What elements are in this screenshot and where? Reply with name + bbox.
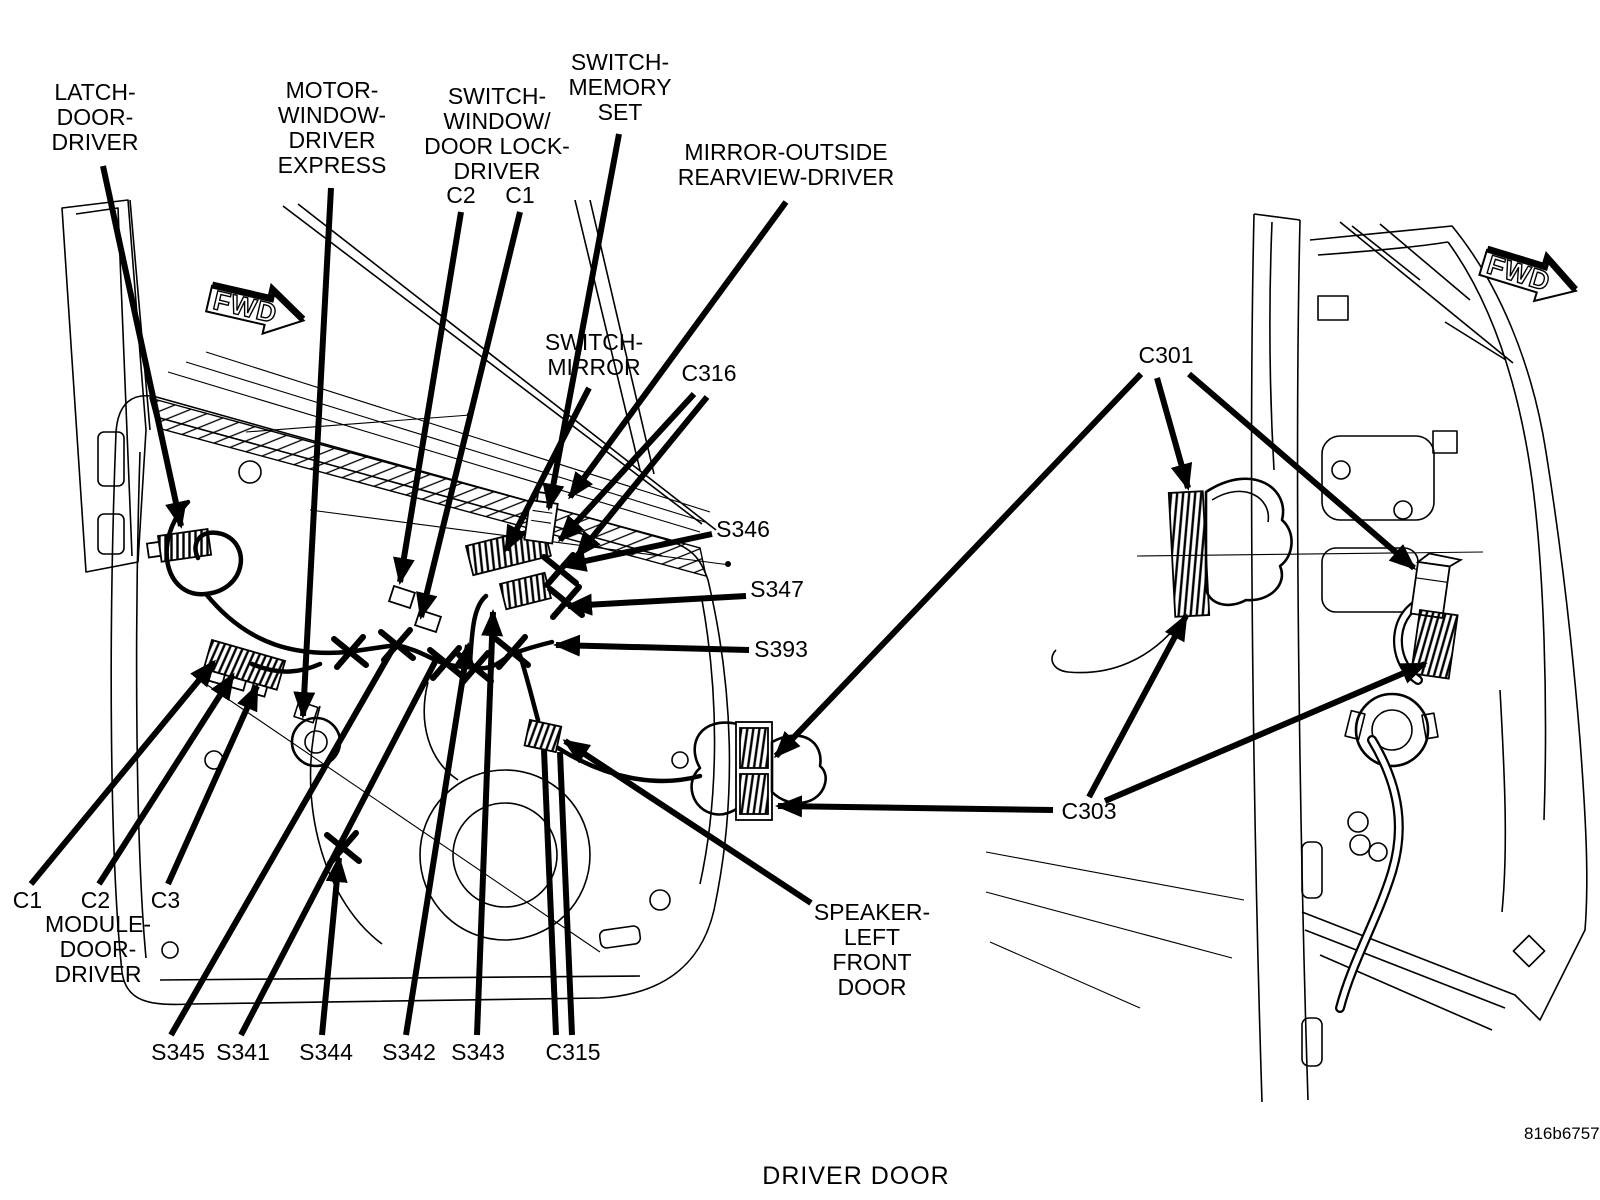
leader-lines: [31, 134, 1425, 1035]
label-s343: S343: [447, 1040, 509, 1065]
label-module-c2: C2: [73, 888, 118, 913]
leader-s345: [171, 650, 392, 1035]
diagram-caption: DRIVER DOOR: [736, 1162, 976, 1191]
leader-c315-1: [544, 750, 556, 1035]
switch-block-2: [500, 573, 551, 609]
label-s393: S393: [748, 637, 814, 662]
label-c303: C303: [1058, 799, 1120, 824]
inline-connector-c315: [525, 720, 562, 752]
label-switch-window-c1: C1: [499, 183, 541, 208]
leader-switch-window-c2: [400, 212, 461, 582]
label-c301: C301: [1134, 343, 1198, 368]
leader-c315-2: [560, 752, 572, 1035]
splice-x: [550, 587, 582, 617]
label-mirror-outside-rearview: MIRROR-OUTSIDE REARVIEW-DRIVER: [666, 140, 906, 190]
leader-c303-left: [778, 806, 1053, 810]
label-switch-memory-set: SWITCH- MEMORY SET: [555, 50, 685, 125]
latch-connector: [146, 529, 211, 563]
label-s345: S345: [147, 1040, 209, 1065]
right-door-art: [986, 214, 1587, 1102]
fwd-arrow-right: FWD: [1477, 240, 1583, 311]
leader-c301-right: [1189, 374, 1414, 568]
fwd-arrow-left: FWD: [204, 276, 309, 342]
leader-speaker: [565, 741, 811, 903]
figure-code: 816b6757: [1524, 1124, 1596, 1144]
label-s344: S344: [295, 1040, 357, 1065]
splice-marks: [327, 555, 582, 863]
label-s341: S341: [212, 1040, 274, 1065]
leader-s344: [322, 858, 339, 1035]
leader-module-c3: [168, 686, 257, 884]
leader-c301-middle: [1157, 378, 1188, 488]
label-s347: S347: [744, 577, 810, 602]
label-c316: C316: [678, 361, 740, 386]
label-module-c3: C3: [143, 888, 188, 913]
splice-x: [544, 555, 576, 585]
label-s346: S346: [710, 517, 776, 542]
label-switch-mirror: SWITCH- MIRROR: [529, 330, 659, 380]
leader-c303-up2: [1105, 664, 1425, 801]
label-switch-window-c2: C2: [440, 183, 482, 208]
label-latch-door-driver: LATCH- DOOR- DRIVER: [35, 80, 155, 155]
label-motor-window-driver: MOTOR- WINDOW- DRIVER EXPRESS: [257, 78, 407, 178]
leader-c301-left: [776, 374, 1141, 756]
label-speaker-left-front-door: SPEAKER- LEFT FRONT DOOR: [807, 900, 937, 1000]
label-c315: C315: [542, 1040, 604, 1065]
door-module-connector: [201, 640, 285, 699]
label-s342: S342: [378, 1040, 440, 1065]
leader-s347: [568, 596, 746, 606]
label-module-c1: C1: [5, 888, 50, 913]
c2-target-connector: [389, 586, 415, 608]
diagram-stage: FWD FWD LATCH- DOOR- DRIVER MOTOR- WINDO…: [0, 0, 1600, 1200]
label-module-door-driver: MODULE- DOOR- DRIVER: [33, 912, 163, 987]
door-frame-connector-upper: [1411, 552, 1461, 619]
